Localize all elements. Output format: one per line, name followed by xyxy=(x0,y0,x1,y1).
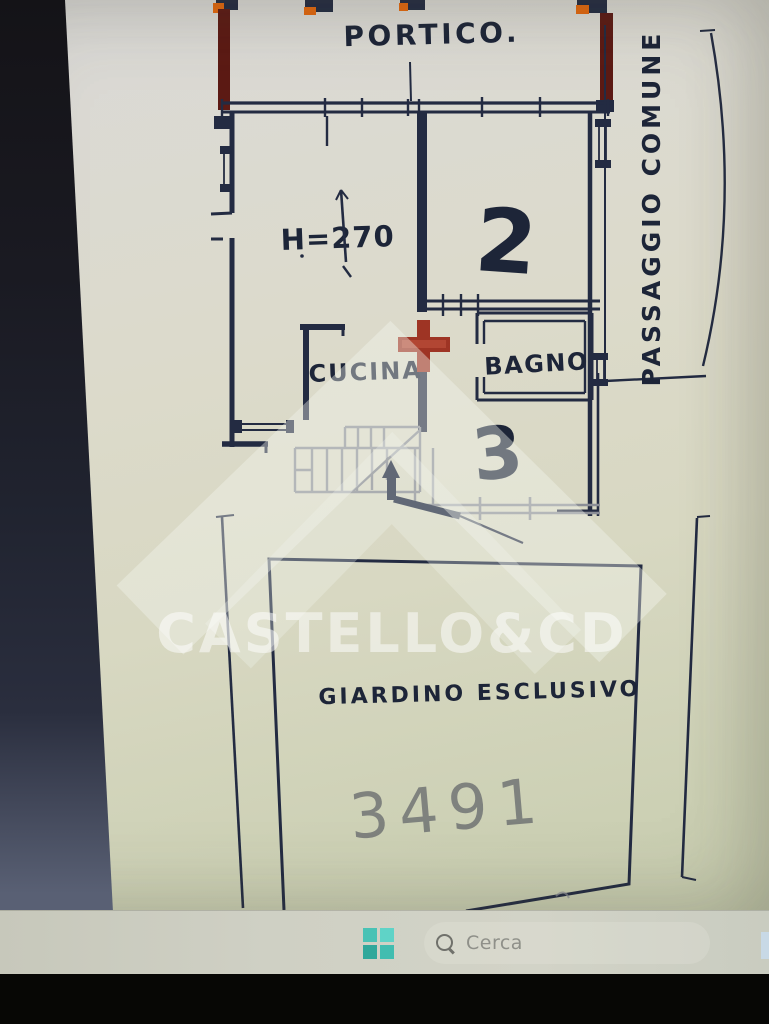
apartment-walls xyxy=(211,112,611,516)
windows-start-icon xyxy=(363,928,377,942)
column-marker xyxy=(400,0,425,10)
passaggio-label: PASSAGGIO COMUNE xyxy=(637,30,666,387)
screen-bezel-bottom xyxy=(0,974,769,1024)
column-marker xyxy=(216,0,238,10)
bagno-label: BAGNO xyxy=(484,347,590,380)
orange-mark xyxy=(213,3,224,13)
height-arrow xyxy=(341,190,346,262)
room2-number: 2 xyxy=(472,188,540,295)
taskbar: Cerca xyxy=(0,910,769,976)
red-wall-mark xyxy=(600,13,613,108)
red-cross-marker xyxy=(398,320,450,372)
monitor-screen: PORTICO. xyxy=(0,0,769,912)
search-box[interactable]: Cerca xyxy=(424,922,710,964)
floor-plan-image: PORTICO. xyxy=(0,0,769,912)
watermark: CASTELLO&CD xyxy=(150,388,633,665)
orange-mark xyxy=(399,3,408,11)
portico-divider xyxy=(410,62,411,101)
room3-number: 3 xyxy=(468,409,527,498)
wall-ticks xyxy=(222,97,608,117)
room-3: 3 xyxy=(415,409,600,520)
garden-pencil-note: 3491 xyxy=(346,764,549,854)
common-passage: PASSAGGIO COMUNE xyxy=(605,25,725,386)
bathroom: BAGNO xyxy=(477,313,608,400)
height-label: H=270 xyxy=(280,219,395,257)
column-marker xyxy=(305,0,333,12)
cucina-label: CUCINA xyxy=(308,356,423,388)
entrance-arrow xyxy=(382,460,523,543)
watermark-text: CASTELLO&CD xyxy=(156,602,627,665)
column-marker xyxy=(577,0,607,13)
garden: GIARDINO ESCLUSIVO 3491 xyxy=(216,515,710,911)
search-icon xyxy=(436,934,455,953)
orange-mark xyxy=(304,7,316,15)
staircase xyxy=(295,427,420,492)
room-1: H=270 xyxy=(280,190,395,277)
roof-watermark-icon xyxy=(150,388,633,628)
search-placeholder: Cerca xyxy=(466,932,523,954)
orange-mark xyxy=(576,5,589,14)
tray-icon-sliver[interactable] xyxy=(761,932,769,959)
portico-label: PORTICO. xyxy=(343,16,520,54)
giardino-label: GIARDINO ESCLUSIVO xyxy=(318,677,641,710)
red-wall-mark xyxy=(218,9,230,110)
portico: PORTICO. xyxy=(213,0,614,146)
room-2: 2 xyxy=(472,188,540,295)
kitchen: CUCINA xyxy=(222,324,423,453)
screen-photo: PORTICO. xyxy=(0,0,769,1024)
start-button[interactable] xyxy=(363,928,394,959)
